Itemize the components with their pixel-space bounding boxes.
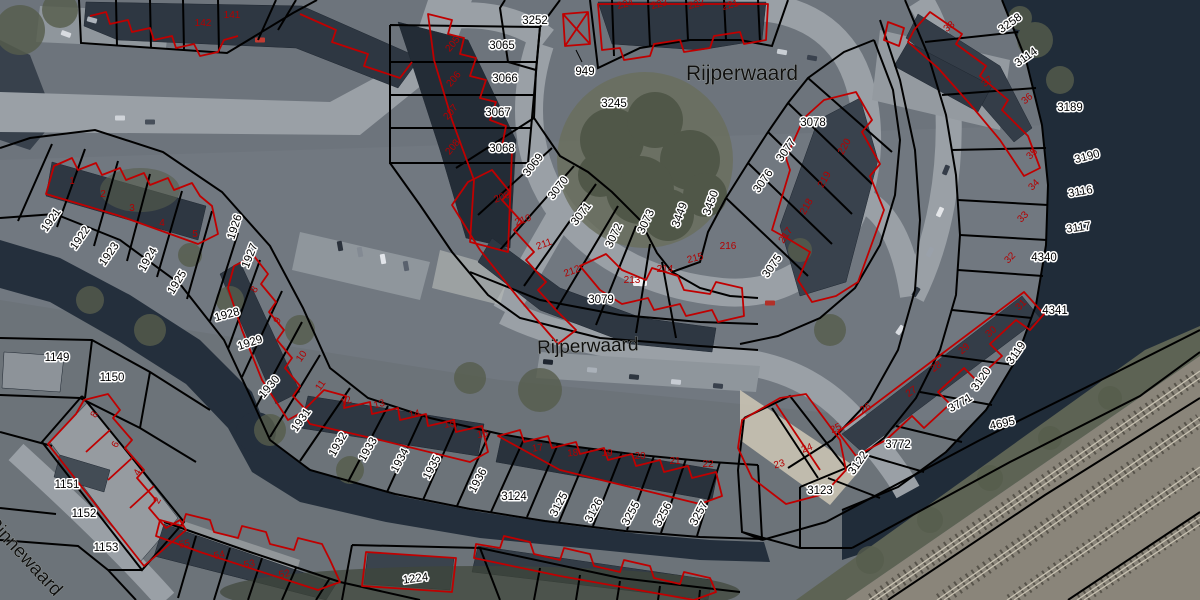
parcel-label[interactable]: 1153 <box>94 542 119 554</box>
parcel-label[interactable]: 1152 <box>72 508 97 520</box>
house-number: 216 <box>720 241 737 252</box>
house-number: 214 <box>657 264 674 275</box>
house-number: 1 <box>69 176 75 187</box>
parcel-label[interactable]: 1151 <box>55 479 80 491</box>
street-label-rijperwaard-north: Rijperwaard <box>686 62 798 85</box>
parcel-label[interactable]: 3123 <box>807 485 833 497</box>
parcel-label[interactable]: 3079 <box>588 294 614 306</box>
parcel-label[interactable]: 3066 <box>492 73 518 85</box>
house-number: 4 <box>159 218 165 229</box>
parcel-label[interactable]: 3252 <box>522 15 548 27</box>
house-number: 213 <box>624 275 641 286</box>
map-viewport[interactable]: 1421411234589101112131415161718192021222… <box>0 0 1200 600</box>
house-number: 3 <box>129 203 135 214</box>
house-number: 2 <box>100 189 106 200</box>
parcel-label[interactable]: 1150 <box>100 372 125 384</box>
house-number: 141 <box>224 10 241 21</box>
parcel-label[interactable]: 3189 <box>1057 102 1083 114</box>
house-number: 21 <box>669 456 681 467</box>
parcel-label[interactable]: 3067 <box>485 107 511 119</box>
house-number: 22 <box>702 459 714 470</box>
parcel-label[interactable]: 3068 <box>489 143 515 155</box>
parcel-label[interactable]: 4340 <box>1031 252 1057 264</box>
parcel-label[interactable]: 1149 <box>45 352 70 364</box>
parcel-label[interactable]: 3245 <box>601 98 627 110</box>
parcel-label[interactable]: 3124 <box>501 491 527 503</box>
house-number: 5 <box>192 229 198 240</box>
parcel-label[interactable]: 949 <box>575 66 594 78</box>
parcel-label[interactable]: 3078 <box>800 117 826 129</box>
house-number: 18 <box>567 448 579 460</box>
parcel-label[interactable]: 3772 <box>885 439 911 451</box>
house-number: 17 <box>531 442 544 455</box>
house-number: 20 <box>634 451 646 462</box>
parcel-label[interactable]: 3065 <box>489 40 515 52</box>
parcel-label[interactable]: 4341 <box>1042 305 1068 317</box>
house-number: 142 <box>195 18 212 29</box>
street-label-rijperwaard-south: Rijperwaard <box>537 334 639 359</box>
house-number: 19 <box>601 448 613 459</box>
